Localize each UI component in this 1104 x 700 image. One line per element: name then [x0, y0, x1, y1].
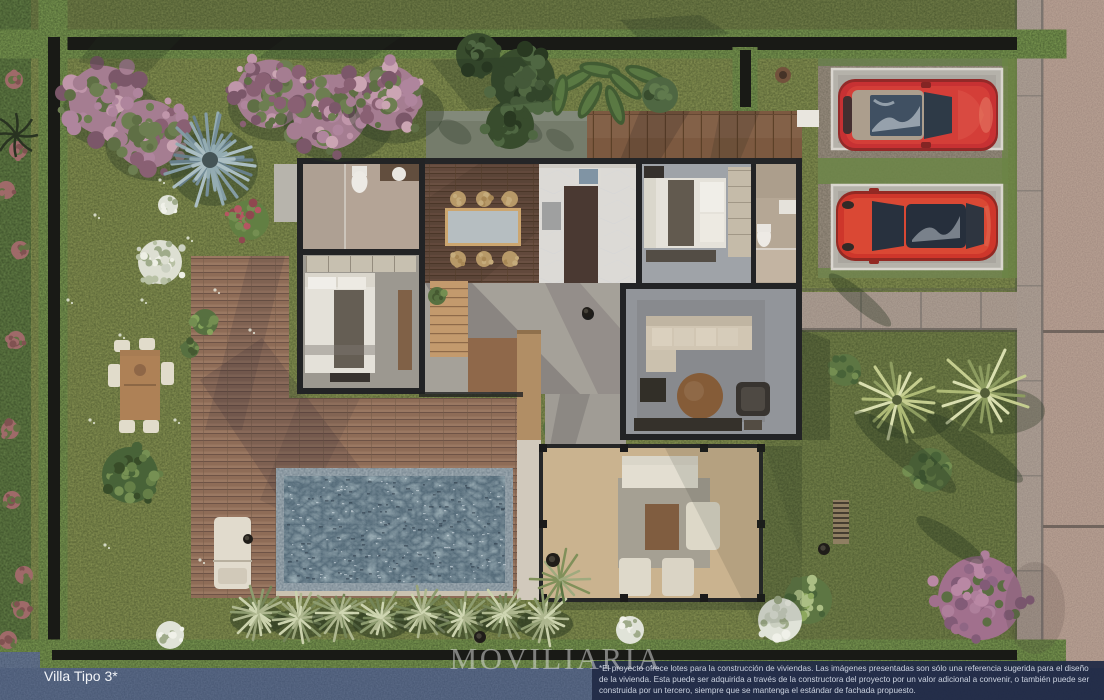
svg-text:construida por un tercero, sie: construida por un tercero, siempre que s… — [599, 686, 916, 695]
svg-text:Villa Tipo 3*: Villa Tipo 3* — [44, 668, 118, 684]
svg-text:*El proyecto ofrece lotes para: *El proyecto ofrece lotes para la constr… — [599, 664, 1089, 673]
svg-text:de la vivienda. Esta puede ser: de la vivienda. Esta puede ser adquirida… — [599, 675, 1089, 684]
